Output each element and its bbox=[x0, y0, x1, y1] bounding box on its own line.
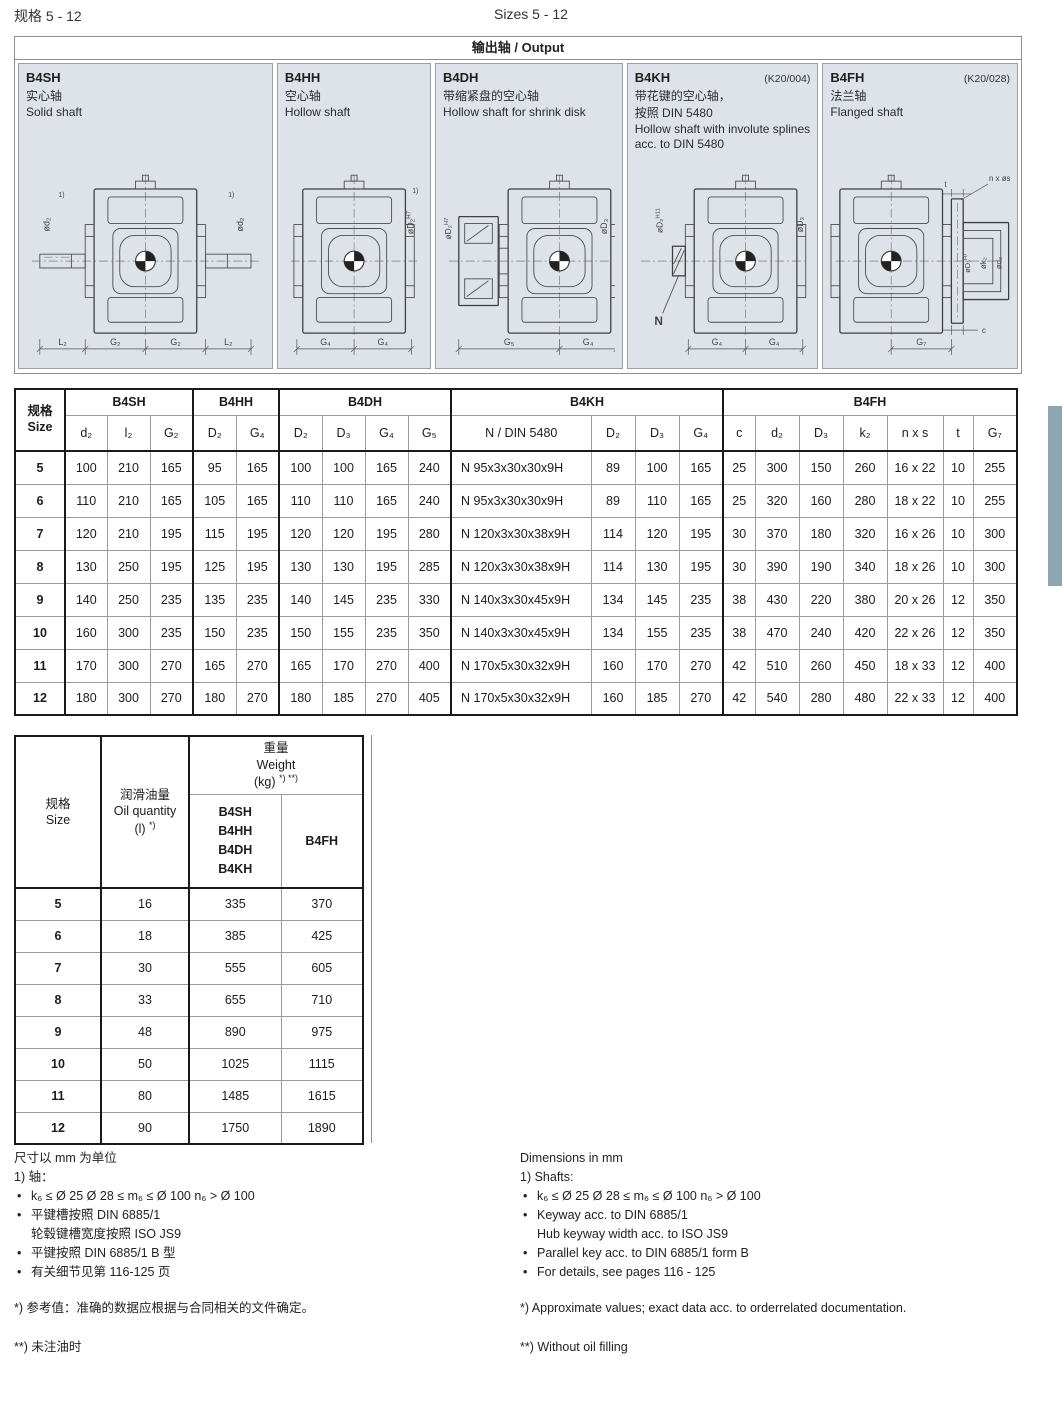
value-cell: 975 bbox=[281, 1016, 363, 1048]
value-cell: 270 bbox=[679, 682, 723, 715]
value-cell: 335 bbox=[189, 888, 281, 920]
weight-row-size-9: 948890975 bbox=[15, 1016, 363, 1048]
value-cell: 320 bbox=[755, 484, 799, 517]
column-header: G₇ bbox=[973, 415, 1017, 451]
value-cell: 210 bbox=[107, 484, 150, 517]
svg-text:c: c bbox=[982, 326, 986, 335]
svg-text:G₇: G₇ bbox=[917, 337, 927, 347]
value-cell: 380 bbox=[843, 583, 887, 616]
column-header: l₂ bbox=[107, 415, 150, 451]
weight-header: 重量Weight(kg) *) **) bbox=[189, 736, 363, 794]
column-header: c bbox=[723, 415, 755, 451]
value-cell: 300 bbox=[973, 550, 1017, 583]
group-header-b4dh: B4DH bbox=[279, 389, 451, 415]
svg-text:øD₃: øD₃ bbox=[599, 218, 609, 234]
value-cell: 135 bbox=[193, 583, 236, 616]
shaft-diagram-b4hh: øD₂H71)G₄G₄ bbox=[285, 166, 423, 366]
panel-b4sh: B4SH实心轴Solid shaftød₂1)ød₂1)L₂G₂G₂L₂ bbox=[18, 63, 273, 369]
shaft-code: B4KH bbox=[635, 70, 670, 85]
size-cell: 10 bbox=[15, 1048, 101, 1080]
value-cell: 89 bbox=[591, 484, 635, 517]
svg-text:ød₂: ød₂ bbox=[235, 218, 245, 232]
value-cell: 1115 bbox=[281, 1048, 363, 1080]
value-cell: 210 bbox=[107, 517, 150, 550]
weight-row-size-11: 118014851615 bbox=[15, 1080, 363, 1112]
value-cell: 400 bbox=[973, 682, 1017, 715]
note-bullet: 平键槽按照 DIN 6885/1 轮毂键槽宽度按照 ISO JS9 bbox=[14, 1206, 494, 1244]
panel-b4hh: B4HH空心轴Hollow shaftøD₂H71)G₄G₄ bbox=[277, 63, 431, 369]
value-cell: 370 bbox=[281, 888, 363, 920]
value-cell: 235 bbox=[150, 616, 193, 649]
value-cell: 185 bbox=[635, 682, 679, 715]
value-cell: 1025 bbox=[189, 1048, 281, 1080]
value-cell: 350 bbox=[973, 616, 1017, 649]
svg-text:1): 1) bbox=[228, 192, 234, 199]
shaft-code: B4HH bbox=[285, 70, 320, 85]
value-cell: 250 bbox=[107, 583, 150, 616]
value-cell: 130 bbox=[279, 550, 322, 583]
value-cell: 400 bbox=[408, 649, 451, 682]
value-cell: 340 bbox=[843, 550, 887, 583]
weight-row-size-6: 618385425 bbox=[15, 920, 363, 952]
shaft-code: B4DH bbox=[443, 70, 478, 85]
value-cell: 150 bbox=[279, 616, 322, 649]
svg-text:t: t bbox=[945, 180, 948, 189]
value-cell: 130 bbox=[322, 550, 365, 583]
group-header-b4kh: B4KH bbox=[451, 389, 723, 415]
value-cell: 480 bbox=[843, 682, 887, 715]
note-approx-values: *) 参考值：准确的数据应根据与合同相关的文件确定。 bbox=[14, 1299, 494, 1318]
value-cell: N 170x5x30x32x9H bbox=[451, 649, 591, 682]
weight-row-size-12: 129017501890 bbox=[15, 1112, 363, 1144]
value-cell: 370 bbox=[755, 517, 799, 550]
value-cell: 12 bbox=[943, 583, 973, 616]
value-cell: 130 bbox=[65, 550, 107, 583]
value-cell: 250 bbox=[107, 550, 150, 583]
value-cell: 20 x 26 bbox=[887, 583, 943, 616]
shaft-code: B4SH bbox=[26, 70, 61, 85]
value-cell: 350 bbox=[973, 583, 1017, 616]
column-header: n x s bbox=[887, 415, 943, 451]
value-cell: 1615 bbox=[281, 1080, 363, 1112]
value-cell: 22 x 26 bbox=[887, 616, 943, 649]
size-cell: 7 bbox=[15, 517, 65, 550]
note-without-oil: **) Without oil filling bbox=[520, 1338, 1060, 1357]
value-cell: 235 bbox=[679, 583, 723, 616]
shaft-diagram-b4kh: NøD₂H11øD₃G₄G₄ bbox=[635, 166, 811, 366]
value-cell: 280 bbox=[843, 484, 887, 517]
note-dimensions: 尺寸以 mm 为单位 bbox=[14, 1149, 494, 1168]
svg-text:G₄: G₄ bbox=[377, 337, 388, 347]
size-cell: 12 bbox=[15, 1112, 101, 1144]
value-cell: 134 bbox=[591, 616, 635, 649]
value-cell: 80 bbox=[101, 1080, 189, 1112]
value-cell: 450 bbox=[843, 649, 887, 682]
column-header: G₄ bbox=[365, 415, 408, 451]
value-cell: 235 bbox=[236, 583, 279, 616]
value-cell: 10 bbox=[943, 550, 973, 583]
value-cell: 350 bbox=[408, 616, 451, 649]
value-cell: 240 bbox=[799, 616, 843, 649]
value-cell: 150 bbox=[193, 616, 236, 649]
value-cell: 235 bbox=[365, 583, 408, 616]
value-cell: N 95x3x30x30x9H bbox=[451, 451, 591, 484]
value-cell: 195 bbox=[150, 517, 193, 550]
size-cell: 10 bbox=[15, 616, 65, 649]
weight-row-size-7: 730555605 bbox=[15, 952, 363, 984]
value-cell: 120 bbox=[65, 517, 107, 550]
value-cell: 405 bbox=[408, 682, 451, 715]
value-cell: 270 bbox=[236, 682, 279, 715]
note-bullet: For details, see pages 116 - 125 bbox=[520, 1263, 1060, 1282]
value-cell: 1750 bbox=[189, 1112, 281, 1144]
page-title-en: Sizes 5 - 12 bbox=[0, 6, 1062, 22]
column-header: D₂ bbox=[279, 415, 322, 451]
value-cell: 114 bbox=[591, 517, 635, 550]
value-cell: 145 bbox=[322, 583, 365, 616]
value-cell: 110 bbox=[279, 484, 322, 517]
value-cell: N 95x3x30x30x9H bbox=[451, 484, 591, 517]
value-cell: 155 bbox=[635, 616, 679, 649]
value-cell: 10 bbox=[943, 484, 973, 517]
value-cell: 30 bbox=[101, 952, 189, 984]
svg-text:n x øs: n x øs bbox=[989, 174, 1010, 183]
group-header-b4fh: B4FH bbox=[723, 389, 1017, 415]
value-cell: 390 bbox=[755, 550, 799, 583]
value-cell: 18 x 26 bbox=[887, 550, 943, 583]
value-cell: 134 bbox=[591, 583, 635, 616]
value-cell: 38 bbox=[723, 616, 755, 649]
value-cell: 235 bbox=[365, 616, 408, 649]
table-row-size-5: 510021016595165100100165240N 95x3x30x30x… bbox=[15, 451, 1017, 484]
value-cell: 255 bbox=[973, 484, 1017, 517]
panel-b4dh: B4DH带缩紧盘的空心轴Hollow shaft for shrink disk… bbox=[435, 63, 623, 369]
value-cell: 165 bbox=[679, 484, 723, 517]
shaft-diagram-b4dh: øD₂H7øD₃G₅G₄ bbox=[443, 166, 615, 366]
value-cell: 120 bbox=[635, 517, 679, 550]
value-cell: 195 bbox=[236, 550, 279, 583]
table-row-size-9: 9140250235135235140145235330N 140x3x30x4… bbox=[15, 583, 1017, 616]
svg-text:øD₂H11: øD₂H11 bbox=[654, 208, 664, 233]
value-cell: 165 bbox=[679, 451, 723, 484]
svg-text:1): 1) bbox=[412, 188, 418, 195]
note-bullet: k₆ ≤ Ø 25 Ø 28 ≤ m₆ ≤ Ø 100 n₆ > Ø 100 bbox=[520, 1187, 1060, 1206]
value-cell: 110 bbox=[65, 484, 107, 517]
svg-text:ød₂: ød₂ bbox=[42, 218, 52, 232]
shaft-name-en: Flanged shaft bbox=[830, 105, 1010, 120]
value-cell: 155 bbox=[322, 616, 365, 649]
value-cell: 165 bbox=[236, 451, 279, 484]
value-cell: 160 bbox=[591, 649, 635, 682]
value-cell: 18 x 33 bbox=[887, 649, 943, 682]
size-cell: 5 bbox=[15, 451, 65, 484]
shaft-name-en: Hollow shaft bbox=[285, 105, 423, 120]
value-cell: 555 bbox=[189, 952, 281, 984]
shaft-name-zh: 法兰轴 bbox=[830, 87, 1010, 104]
shaft-code: B4FH bbox=[830, 70, 864, 85]
value-cell: 114 bbox=[591, 550, 635, 583]
size-cell: 6 bbox=[15, 920, 101, 952]
value-cell: 420 bbox=[843, 616, 887, 649]
value-cell: 170 bbox=[65, 649, 107, 682]
size-cell: 6 bbox=[15, 484, 65, 517]
weight-subheader-combined: B4SH B4HH B4DH B4KH bbox=[189, 794, 281, 888]
value-cell: 605 bbox=[281, 952, 363, 984]
value-cell: 270 bbox=[365, 649, 408, 682]
shaft-diagram-b4fh: øD₃H7øk₂ød₂tn x øscG₇ bbox=[830, 166, 1010, 366]
group-header-b4sh: B4SH bbox=[65, 389, 193, 415]
svg-text:G₅: G₅ bbox=[504, 337, 515, 347]
column-header: D₃ bbox=[635, 415, 679, 451]
value-cell: 18 bbox=[101, 920, 189, 952]
value-cell: 195 bbox=[365, 550, 408, 583]
svg-text:øk₂: øk₂ bbox=[979, 257, 988, 269]
size-cell: 11 bbox=[15, 1080, 101, 1112]
size-cell: 12 bbox=[15, 682, 65, 715]
shaft-code-ref: (K20/004) bbox=[764, 73, 810, 85]
size-cell: 9 bbox=[15, 583, 65, 616]
size-header: 规格Size bbox=[15, 736, 101, 888]
value-cell: 25 bbox=[723, 484, 755, 517]
value-cell: 400 bbox=[973, 649, 1017, 682]
value-cell: 195 bbox=[679, 517, 723, 550]
value-cell: 165 bbox=[365, 484, 408, 517]
value-cell: 10 bbox=[943, 517, 973, 550]
value-cell: 210 bbox=[107, 451, 150, 484]
svg-text:G₄: G₄ bbox=[711, 337, 722, 347]
value-cell: 280 bbox=[799, 682, 843, 715]
table-row-size-8: 8130250195125195130130195285N 120x3x30x3… bbox=[15, 550, 1017, 583]
table-row-size-10: 10160300235150235150155235350N 140x3x30x… bbox=[15, 616, 1017, 649]
value-cell: 170 bbox=[322, 649, 365, 682]
value-cell: N 140x3x30x45x9H bbox=[451, 616, 591, 649]
value-cell: 100 bbox=[322, 451, 365, 484]
column-header: G₅ bbox=[408, 415, 451, 451]
weight-row-size-5: 516335370 bbox=[15, 888, 363, 920]
value-cell: 285 bbox=[408, 550, 451, 583]
value-cell: 12 bbox=[943, 682, 973, 715]
value-cell: 710 bbox=[281, 984, 363, 1016]
value-cell: 180 bbox=[193, 682, 236, 715]
value-cell: 320 bbox=[843, 517, 887, 550]
svg-text:G₄: G₄ bbox=[769, 337, 780, 347]
svg-text:øD₃: øD₃ bbox=[794, 216, 804, 232]
table-row-size-12: 12180300270180270180185270405N 170x5x30x… bbox=[15, 682, 1017, 715]
column-header: D₂ bbox=[193, 415, 236, 451]
value-cell: 300 bbox=[107, 649, 150, 682]
dimensions-table: 规格SizeB4SHB4HHB4DHB4KHB4FHd₂l₂G₂D₂G₄D₂D₃… bbox=[14, 388, 1018, 716]
footnotes-english: Dimensions in mm1) Shafts:k₆ ≤ Ø 25 Ø 28… bbox=[520, 1149, 1060, 1357]
value-cell: 90 bbox=[101, 1112, 189, 1144]
table-row-size-7: 7120210195115195120120195280N 120x3x30x3… bbox=[15, 517, 1017, 550]
weight-row-size-8: 833655710 bbox=[15, 984, 363, 1016]
column-header: t bbox=[943, 415, 973, 451]
column-header: d₂ bbox=[65, 415, 107, 451]
value-cell: 470 bbox=[755, 616, 799, 649]
value-cell: 145 bbox=[635, 583, 679, 616]
note-shafts-heading: 1) Shafts: bbox=[520, 1168, 1060, 1187]
column-header: G₂ bbox=[150, 415, 193, 451]
value-cell: 16 x 26 bbox=[887, 517, 943, 550]
value-cell: 235 bbox=[236, 616, 279, 649]
shaft-name-zh: 空心轴 bbox=[285, 87, 423, 104]
svg-text:1): 1) bbox=[58, 192, 64, 199]
value-cell: 655 bbox=[189, 984, 281, 1016]
value-cell: 195 bbox=[365, 517, 408, 550]
value-cell: 165 bbox=[365, 451, 408, 484]
note-bullet: 有关细节见第 116-125 页 bbox=[14, 1263, 494, 1282]
size-cell: 11 bbox=[15, 649, 65, 682]
value-cell: 220 bbox=[799, 583, 843, 616]
value-cell: 120 bbox=[279, 517, 322, 550]
value-cell: 180 bbox=[279, 682, 322, 715]
value-cell: 165 bbox=[150, 451, 193, 484]
column-header: G₄ bbox=[679, 415, 723, 451]
value-cell: 270 bbox=[365, 682, 408, 715]
value-cell: 100 bbox=[65, 451, 107, 484]
shaft-name-en: Hollow shaft with involute splines acc. … bbox=[635, 122, 811, 152]
value-cell: 540 bbox=[755, 682, 799, 715]
value-cell: 300 bbox=[973, 517, 1017, 550]
size-cell: 8 bbox=[15, 984, 101, 1016]
svg-text:G₂: G₂ bbox=[110, 337, 120, 347]
value-cell: 185 bbox=[322, 682, 365, 715]
value-cell: 165 bbox=[193, 649, 236, 682]
oil-quantity-header: 润滑油量Oil quantity(l) *) bbox=[101, 736, 189, 888]
note-dimensions: Dimensions in mm bbox=[520, 1149, 1060, 1168]
value-cell: 240 bbox=[408, 484, 451, 517]
value-cell: N 120x3x30x38x9H bbox=[451, 517, 591, 550]
value-cell: 235 bbox=[679, 616, 723, 649]
value-cell: 140 bbox=[65, 583, 107, 616]
value-cell: 300 bbox=[755, 451, 799, 484]
page-edge-tab bbox=[1048, 406, 1062, 586]
note-shafts-heading: 1) 轴： bbox=[14, 1168, 494, 1187]
shaft-name-zh: 带缩紧盘的空心轴 bbox=[443, 87, 615, 104]
value-cell: 260 bbox=[843, 451, 887, 484]
vertical-divider bbox=[371, 735, 372, 1143]
value-cell: 300 bbox=[107, 682, 150, 715]
value-cell: 195 bbox=[150, 550, 193, 583]
column-header: D₃ bbox=[322, 415, 365, 451]
svg-text:L₂: L₂ bbox=[224, 337, 232, 347]
value-cell: 42 bbox=[723, 682, 755, 715]
size-cell: 5 bbox=[15, 888, 101, 920]
value-cell: 25 bbox=[723, 451, 755, 484]
value-cell: 120 bbox=[322, 517, 365, 550]
size-cell: 7 bbox=[15, 952, 101, 984]
value-cell: 160 bbox=[591, 682, 635, 715]
shaft-name-zh: 带花键的空心轴， 按照 DIN 5480 bbox=[635, 87, 811, 121]
note-without-oil: **) 未注油时 bbox=[14, 1338, 494, 1357]
note-approx-values: *) Approximate values; exact data acc. t… bbox=[520, 1299, 1060, 1318]
value-cell: 10 bbox=[943, 451, 973, 484]
value-cell: 165 bbox=[150, 484, 193, 517]
value-cell: 150 bbox=[799, 451, 843, 484]
catalog-page: 规格 5 - 12 Sizes 5 - 12 输出轴 / Output B4SH… bbox=[0, 0, 1062, 1401]
value-cell: 300 bbox=[107, 616, 150, 649]
size-header: 规格Size bbox=[15, 389, 65, 451]
value-cell: 42 bbox=[723, 649, 755, 682]
value-cell: 105 bbox=[193, 484, 236, 517]
value-cell: 425 bbox=[281, 920, 363, 952]
column-header: G₄ bbox=[236, 415, 279, 451]
output-shaft-box: 输出轴 / Output B4SH实心轴Solid shaftød₂1)ød₂1… bbox=[14, 36, 1022, 374]
value-cell: 165 bbox=[279, 649, 322, 682]
svg-text:G₂: G₂ bbox=[170, 337, 180, 347]
value-cell: 110 bbox=[322, 484, 365, 517]
value-cell: 50 bbox=[101, 1048, 189, 1080]
oil-weight-table: 规格Size润滑油量Oil quantity(l) *)重量Weight(kg)… bbox=[14, 735, 364, 1145]
output-box-header: 输出轴 / Output bbox=[15, 37, 1021, 60]
value-cell: 180 bbox=[65, 682, 107, 715]
value-cell: 270 bbox=[150, 649, 193, 682]
note-bullet: Keyway acc. to DIN 6885/1 Hub keyway wid… bbox=[520, 1206, 1060, 1244]
value-cell: 115 bbox=[193, 517, 236, 550]
value-cell: 12 bbox=[943, 616, 973, 649]
value-cell: N 120x3x30x38x9H bbox=[451, 550, 591, 583]
value-cell: 280 bbox=[408, 517, 451, 550]
value-cell: 1890 bbox=[281, 1112, 363, 1144]
note-bullet: k₆ ≤ Ø 25 Ø 28 ≤ m₆ ≤ Ø 100 n₆ > Ø 100 bbox=[14, 1187, 494, 1206]
value-cell: N 170x5x30x32x9H bbox=[451, 682, 591, 715]
value-cell: 330 bbox=[408, 583, 451, 616]
svg-text:G₄: G₄ bbox=[320, 337, 331, 347]
value-cell: 140 bbox=[279, 583, 322, 616]
value-cell: 22 x 33 bbox=[887, 682, 943, 715]
value-cell: 270 bbox=[150, 682, 193, 715]
value-cell: 16 x 22 bbox=[887, 451, 943, 484]
value-cell: 160 bbox=[799, 484, 843, 517]
value-cell: 510 bbox=[755, 649, 799, 682]
value-cell: 110 bbox=[635, 484, 679, 517]
svg-text:L₂: L₂ bbox=[58, 337, 66, 347]
note-bullet: Parallel key acc. to DIN 6885/1 form B bbox=[520, 1244, 1060, 1263]
weight-row-size-10: 105010251115 bbox=[15, 1048, 363, 1080]
panel-b4kh: B4KH(K20/004)带花键的空心轴， 按照 DIN 5480Hollow … bbox=[627, 63, 819, 369]
shaft-name-en: Solid shaft bbox=[26, 105, 265, 120]
svg-text:øD₂H7: øD₂H7 bbox=[443, 218, 453, 240]
value-cell: 18 x 22 bbox=[887, 484, 943, 517]
value-cell: 12 bbox=[943, 649, 973, 682]
footnotes-chinese: 尺寸以 mm 为单位1) 轴：k₆ ≤ Ø 25 Ø 28 ≤ m₆ ≤ Ø 1… bbox=[14, 1149, 494, 1357]
value-cell: 270 bbox=[236, 649, 279, 682]
column-header: D₂ bbox=[591, 415, 635, 451]
value-cell: 16 bbox=[101, 888, 189, 920]
value-cell: 125 bbox=[193, 550, 236, 583]
shaft-code-ref: (K20/028) bbox=[964, 73, 1010, 85]
weight-subheader-b4fh: B4FH bbox=[281, 794, 363, 888]
column-header: k₂ bbox=[843, 415, 887, 451]
value-cell: 100 bbox=[279, 451, 322, 484]
value-cell: 255 bbox=[973, 451, 1017, 484]
value-cell: 235 bbox=[150, 583, 193, 616]
value-cell: 30 bbox=[723, 550, 755, 583]
value-cell: 170 bbox=[635, 649, 679, 682]
value-cell: 180 bbox=[799, 517, 843, 550]
shaft-diagram-b4sh: ød₂1)ød₂1)L₂G₂G₂L₂ bbox=[26, 166, 265, 366]
group-header-b4hh: B4HH bbox=[193, 389, 279, 415]
panel-b4fh: B4FH(K20/028)法兰轴Flanged shaftøD₃H7øk₂ød₂… bbox=[822, 63, 1018, 369]
value-cell: 30 bbox=[723, 517, 755, 550]
column-header: d₂ bbox=[755, 415, 799, 451]
value-cell: 240 bbox=[408, 451, 451, 484]
shaft-variant-panels: B4SH实心轴Solid shaftød₂1)ød₂1)L₂G₂G₂L₂B4HH… bbox=[15, 60, 1021, 372]
value-cell: 260 bbox=[799, 649, 843, 682]
svg-text:N: N bbox=[654, 314, 663, 328]
value-cell: 195 bbox=[679, 550, 723, 583]
value-cell: 165 bbox=[236, 484, 279, 517]
